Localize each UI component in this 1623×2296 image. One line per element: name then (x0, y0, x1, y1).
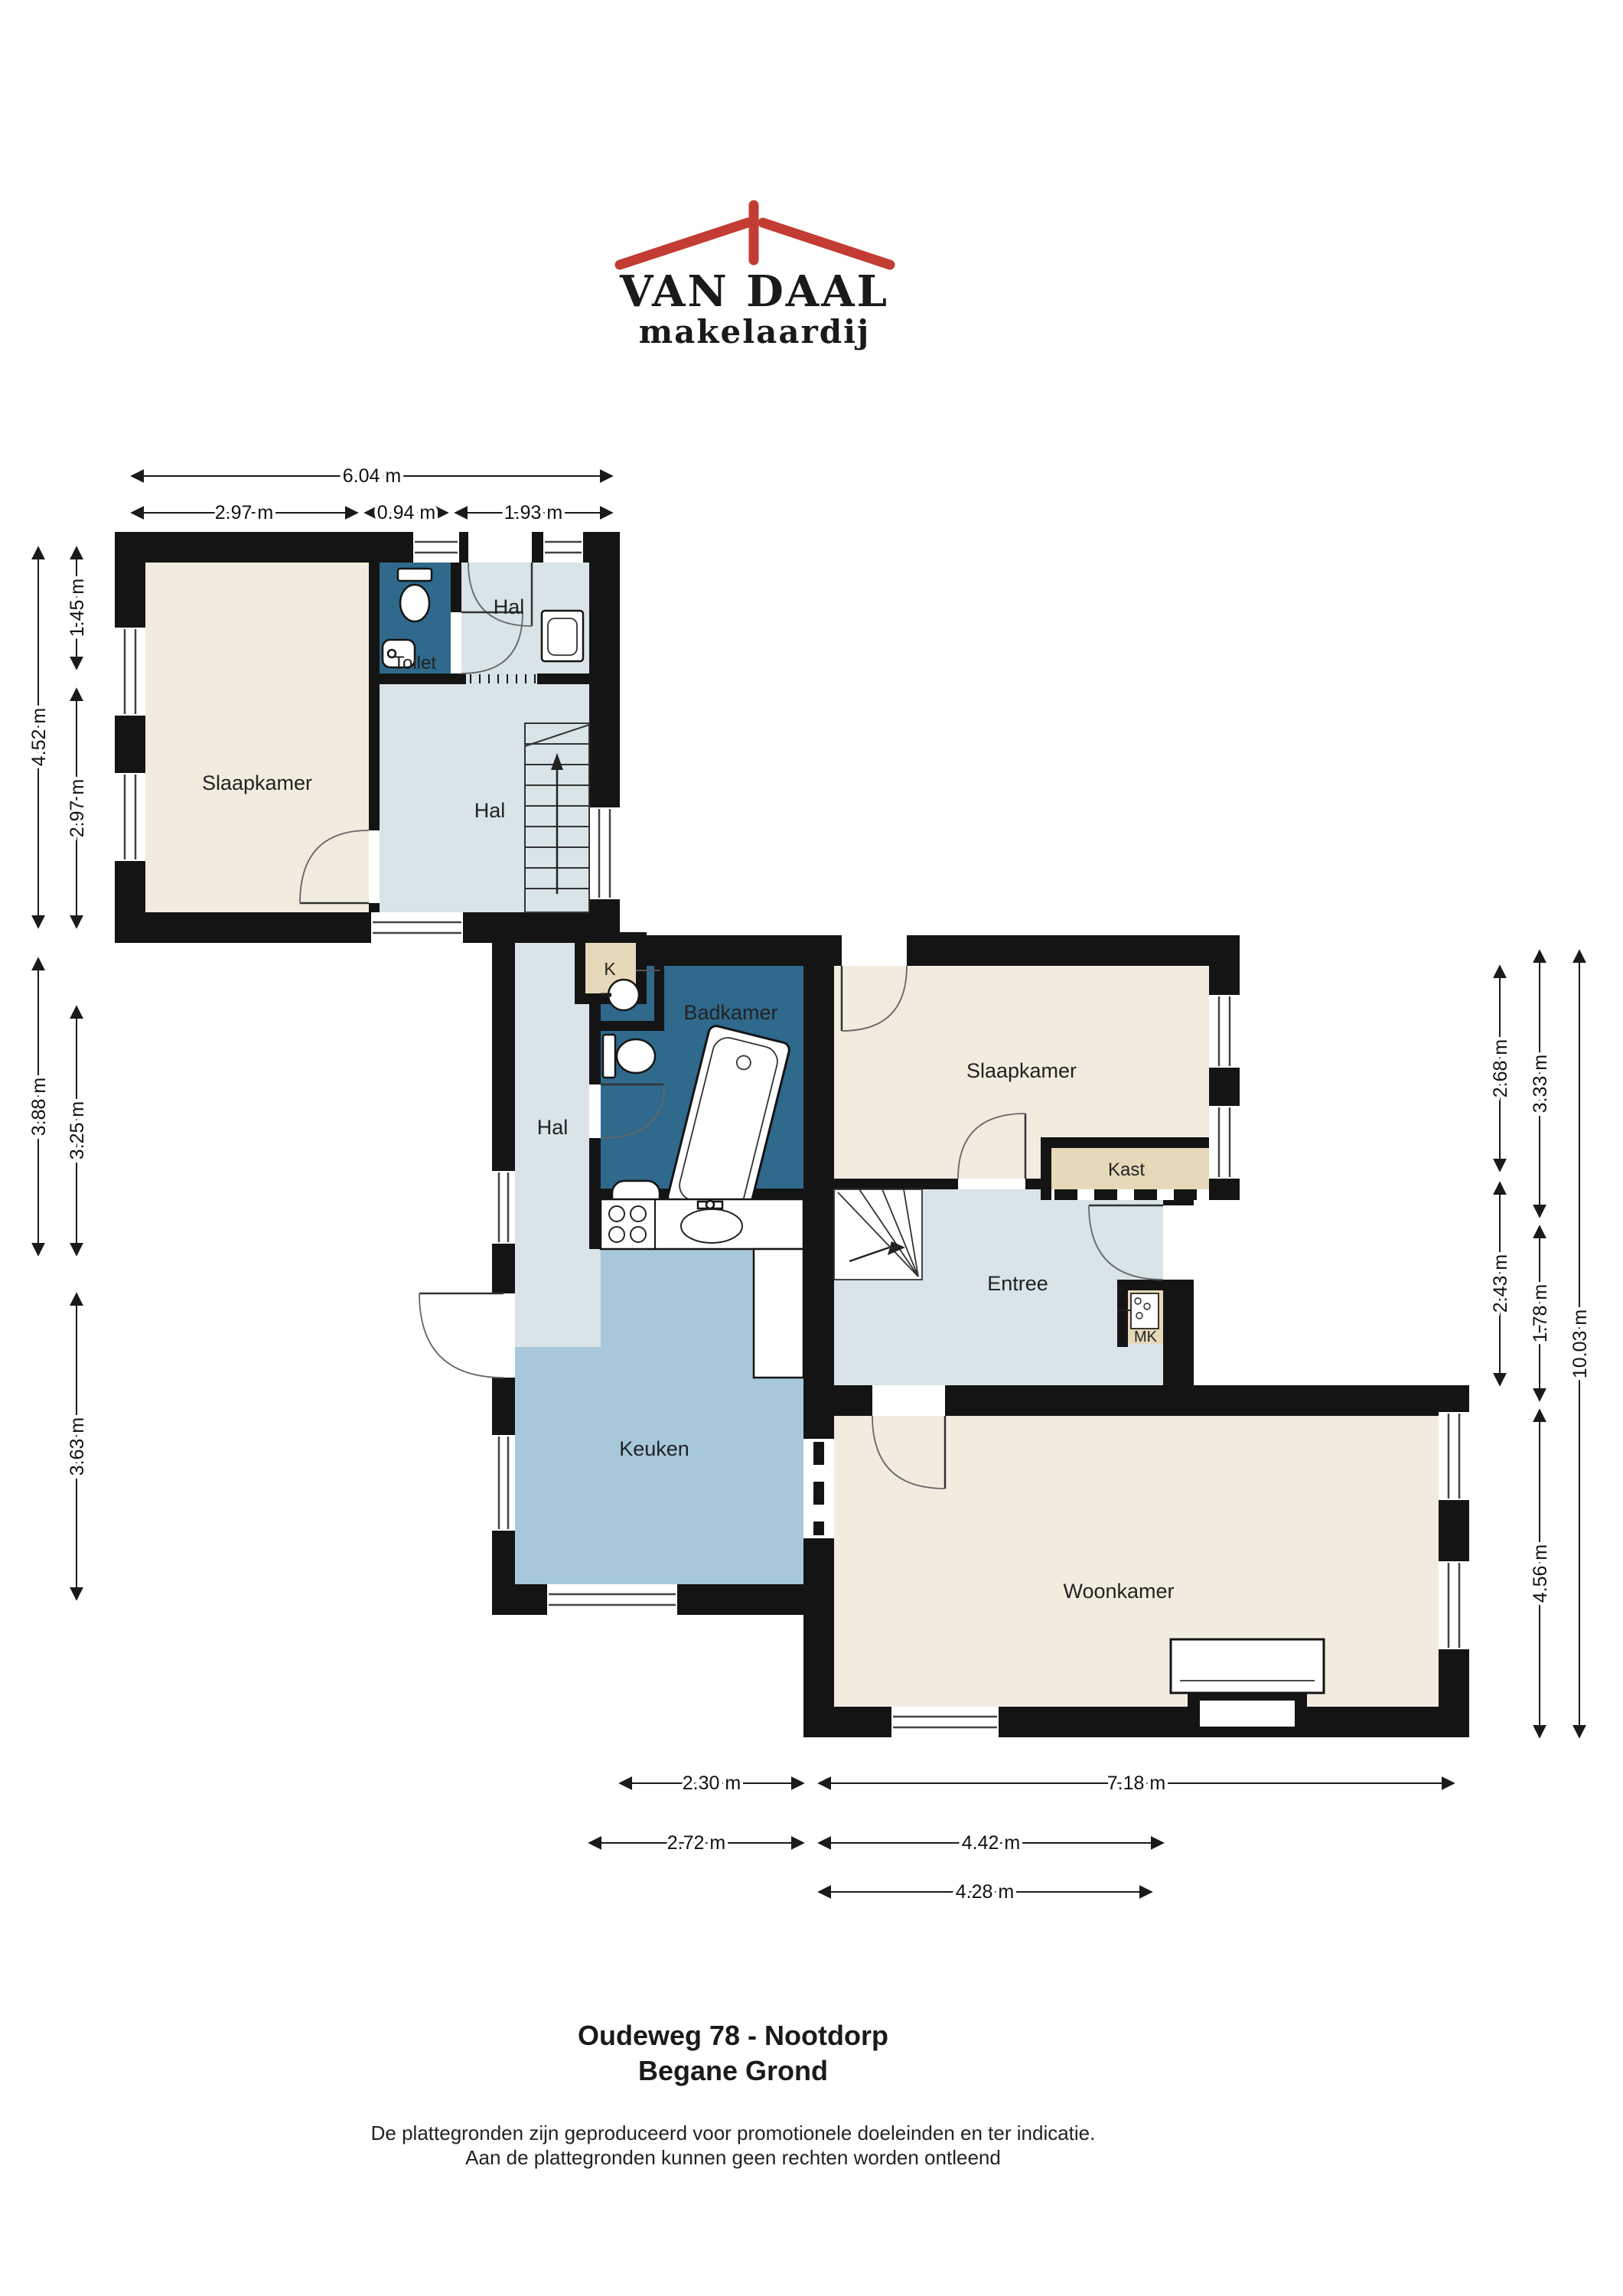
window (547, 1584, 677, 1615)
dimension-right-mid-2: 1.78 m (1530, 1226, 1551, 1401)
svg-text:3.25 m: 3.25 m (67, 1101, 88, 1159)
dimension-right-mid-3: 4.56 m (1530, 1410, 1551, 1737)
dimension-right-outer: 10.03 m (1569, 951, 1591, 1737)
label-badkamer: Badkamer (683, 1001, 777, 1024)
dimension-right-mid-1: 3.33 m (1530, 951, 1551, 1217)
label-hal-strip: Hal (537, 1116, 569, 1139)
svg-text:4.28 m: 4.28 m (956, 1881, 1014, 1903)
label-kast: Kast (1108, 1159, 1145, 1180)
fireplace-icon (1171, 1639, 1324, 1736)
dimension-right-inner-2: 2.43 m (1490, 1182, 1511, 1385)
footer-disclaimer-2: Aan de plattegronden kunnen geen rechten… (465, 2146, 1001, 2169)
dimension-bottom-2: 7.18 m (819, 1773, 1454, 1794)
label-slaapkamer-1: Slaapkamer (202, 771, 312, 794)
window (1439, 1412, 1469, 1500)
room-woonkamer (834, 1416, 1439, 1707)
logo-tagline: makelaardij (639, 313, 871, 351)
window (891, 1707, 999, 1737)
window (115, 628, 145, 716)
window (1439, 1561, 1469, 1649)
label-toilet: Toilet (393, 653, 436, 673)
window (1209, 995, 1240, 1068)
svg-text:0.94 m: 0.94 m (377, 502, 435, 523)
label-hal-main: Hal (474, 799, 506, 822)
floorplan-page: VAN DAAL makelaardij (0, 0, 1623, 2296)
winder-stairs-icon (834, 1189, 922, 1280)
footer: Oudeweg 78 - Nootdorp Begane Grond De pl… (371, 2020, 1096, 2169)
room-fills (145, 563, 1439, 1707)
room-slaapkamer-1 (145, 563, 369, 912)
svg-text:3.33 m: 3.33 m (1530, 1055, 1551, 1113)
window (589, 807, 620, 899)
svg-text:4.56 m: 4.56 m (1530, 1544, 1551, 1603)
svg-text:2.97 m: 2.97 m (215, 502, 273, 523)
agency-logo: VAN DAAL makelaardij (619, 205, 890, 351)
label-entree: Entree (987, 1272, 1048, 1295)
footer-address: Oudeweg 78 - Nootdorp (578, 2020, 888, 2051)
dimension-left-inner-2: 2.97 m (67, 689, 88, 928)
svg-text:2.72 m: 2.72 m (667, 1832, 725, 1854)
sliding-opening-kast (1051, 1189, 1209, 1200)
dimension-top-2: 0.94 m (365, 502, 448, 523)
svg-text:1.93 m: 1.93 m (504, 502, 562, 523)
window (492, 1171, 515, 1244)
dimension-left-inner-4: 3.63 m (67, 1293, 88, 1600)
sliding-opening-keuken-woonkamer (803, 1439, 834, 1538)
footer-floor: Begane Grond (638, 2055, 828, 2086)
door-keuken-exterior (419, 1293, 515, 1378)
svg-text:2.97 m: 2.97 m (67, 779, 88, 837)
window (492, 1435, 515, 1531)
logo-name: VAN DAAL (619, 266, 889, 317)
window (543, 532, 583, 563)
dimension-top-total: 6.04 m (132, 465, 612, 487)
svg-text:4.42 m: 4.42 m (962, 1832, 1020, 1854)
svg-text:3.88 m: 3.88 m (28, 1078, 50, 1136)
label-keuken: Keuken (619, 1437, 689, 1460)
svg-text:7.18 m: 7.18 m (1107, 1773, 1165, 1794)
label-slaapkamer-2: Slaapkamer (966, 1059, 1077, 1082)
dimension-bottom-4: 4.42 m (819, 1832, 1163, 1854)
svg-text:2.68 m: 2.68 m (1490, 1039, 1511, 1097)
window (413, 532, 459, 563)
dimension-left-outer-2: 3.88 m (28, 958, 50, 1255)
dimension-top-1: 2.97 m (132, 502, 357, 523)
washer-icon (542, 611, 583, 661)
svg-text:1.45 m: 1.45 m (67, 579, 88, 637)
svg-text:3.63 m: 3.63 m (67, 1417, 88, 1476)
kitchen-counter (601, 1199, 803, 1249)
label-k: K (604, 959, 616, 979)
svg-text:2.43 m: 2.43 m (1490, 1254, 1511, 1313)
dimension-left-inner-1: 1.45 m (67, 547, 88, 669)
fridge-icon (754, 1249, 803, 1378)
roof-icon (620, 205, 890, 265)
svg-text:10.03 m: 10.03 m (1569, 1309, 1591, 1378)
label-hal-top: Hal (494, 595, 525, 618)
dimension-top-3: 1.93 m (455, 502, 612, 523)
label-woonkamer: Woonkamer (1063, 1580, 1174, 1603)
dimension-left-inner-3: 3.25 m (67, 1006, 88, 1255)
floorplan-canvas: VAN DAAL makelaardij (0, 0, 1623, 2296)
svg-text:6.04 m: 6.04 m (343, 465, 401, 487)
svg-text:2.30 m: 2.30 m (683, 1773, 741, 1794)
svg-text:4.52 m: 4.52 m (28, 708, 50, 766)
window (1209, 1106, 1240, 1179)
dimension-bottom-3: 2.72 m (589, 1832, 803, 1854)
dimension-bottom-1: 2.30 m (620, 1773, 803, 1794)
dimension-left-outer-1: 4.52 m (28, 547, 50, 928)
dimension-bottom-5: 4.28 m (819, 1881, 1152, 1903)
footer-disclaimer-1: De plattegronden zijn geproduceerd voor … (371, 2122, 1096, 2144)
svg-text:1.78 m: 1.78 m (1530, 1284, 1551, 1342)
window (115, 773, 145, 861)
toilet-icon (398, 569, 432, 621)
label-mk: MK (1134, 1329, 1158, 1345)
window (371, 912, 463, 943)
dimension-right-inner-1: 2.68 m (1490, 966, 1511, 1171)
